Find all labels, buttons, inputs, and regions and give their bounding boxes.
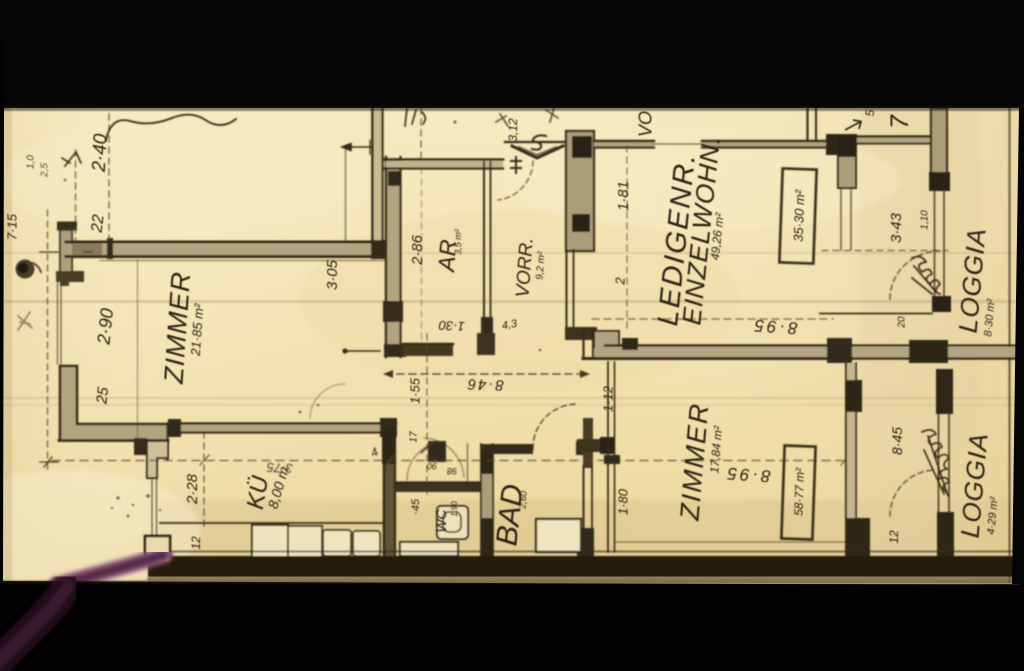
svg-text:3,12: 3,12 xyxy=(506,118,520,142)
svg-text:35·30 m²: 35·30 m² xyxy=(791,189,808,242)
svg-text:90: 90 xyxy=(427,461,437,471)
svg-text:VO: VO xyxy=(635,111,655,137)
svg-text:2·28: 2·28 xyxy=(184,473,201,505)
svg-text:12: 12 xyxy=(887,530,901,544)
svg-text:8·45: 8·45 xyxy=(889,427,905,455)
svg-text:2,5: 2,5 xyxy=(40,163,51,178)
svg-text:1·30: 1·30 xyxy=(438,318,466,334)
svg-text:3·05: 3·05 xyxy=(324,259,341,290)
svg-text:2·40: 2·40 xyxy=(89,133,112,174)
svg-text:1·12: 1·12 xyxy=(601,385,616,412)
svg-text:17: 17 xyxy=(409,431,420,443)
svg-text:2·90: 2·90 xyxy=(93,307,117,346)
svg-text:8·95: 8·95 xyxy=(751,316,798,338)
svg-text:1·55: 1·55 xyxy=(408,377,423,404)
svg-text:12: 12 xyxy=(189,536,203,550)
svg-text:25: 25 xyxy=(93,386,112,406)
svg-text:2,60: 2,60 xyxy=(517,491,528,510)
svg-text:3,5 m²: 3,5 m² xyxy=(453,228,463,255)
svg-text:WC: WC xyxy=(433,508,449,532)
svg-text:20: 20 xyxy=(897,316,908,329)
svg-text:9,2 m²: 9,2 m² xyxy=(535,251,548,281)
svg-text:22: 22 xyxy=(89,214,108,235)
svg-text:·45: ·45 xyxy=(410,498,422,515)
svg-text:1,10: 1,10 xyxy=(920,210,931,230)
svg-text:1·81: 1·81 xyxy=(615,181,632,211)
svg-text:1,0: 1,0 xyxy=(26,155,37,169)
svg-text:58·77 m²: 58·77 m² xyxy=(791,467,807,516)
svg-text:3·43: 3·43 xyxy=(888,212,905,243)
svg-text:2: 2 xyxy=(613,277,628,286)
svg-text:1·80: 1·80 xyxy=(616,488,631,515)
svg-text:2·86: 2·86 xyxy=(409,234,426,266)
svg-text:VORR.: VORR. xyxy=(513,237,538,299)
svg-text:8·46: 8·46 xyxy=(466,375,505,393)
svg-text:98: 98 xyxy=(447,466,457,476)
svg-text:7: 7 xyxy=(886,114,914,129)
svg-text:8·95: 8·95 xyxy=(724,464,771,486)
svg-text:1,90: 1,90 xyxy=(450,501,459,517)
svg-text:7·15: 7·15 xyxy=(5,213,20,240)
